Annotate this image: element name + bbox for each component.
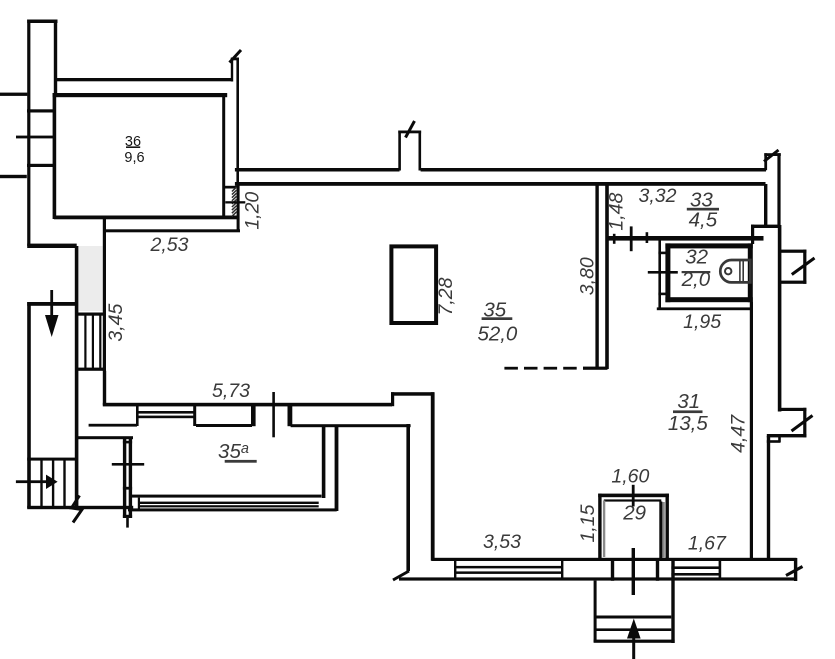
svg-text:9,6: 9,6 bbox=[124, 150, 144, 166]
svg-text:3,32: 3,32 bbox=[639, 185, 677, 207]
svg-text:4,47: 4,47 bbox=[727, 414, 749, 453]
svg-text:2,0: 2,0 bbox=[681, 268, 711, 291]
svg-text:2,53: 2,53 bbox=[150, 234, 189, 256]
svg-text:5,73: 5,73 bbox=[212, 380, 250, 402]
svg-text:1,20: 1,20 bbox=[242, 192, 264, 230]
svg-text:1,48: 1,48 bbox=[606, 192, 628, 230]
svg-text:4,5: 4,5 bbox=[689, 208, 718, 231]
svg-text:1,60: 1,60 bbox=[611, 466, 649, 488]
svg-text:7,28: 7,28 bbox=[435, 277, 457, 315]
svg-text:13,5: 13,5 bbox=[668, 412, 708, 435]
svg-text:1,67: 1,67 bbox=[688, 533, 727, 555]
svg-text:32: 32 bbox=[685, 246, 708, 269]
svg-text:3,45: 3,45 bbox=[105, 303, 127, 341]
svg-text:1,15: 1,15 bbox=[577, 504, 599, 542]
svg-text:3,53: 3,53 bbox=[483, 531, 521, 553]
svg-text:31: 31 bbox=[677, 390, 700, 413]
svg-text:52,0: 52,0 bbox=[477, 323, 517, 346]
svg-text:3,80: 3,80 bbox=[576, 257, 598, 295]
svg-text:1,95: 1,95 bbox=[683, 311, 721, 333]
